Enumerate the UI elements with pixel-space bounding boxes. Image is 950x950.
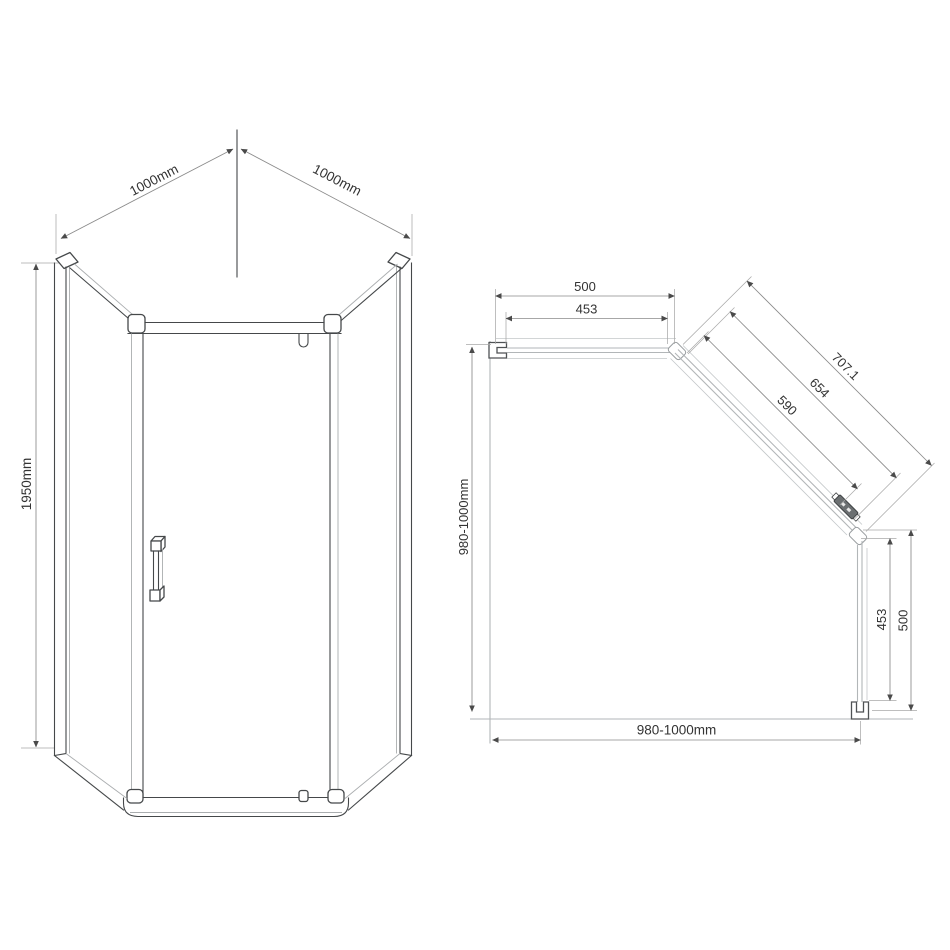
right-wall-post [388, 253, 412, 756]
drawing-svg: 1000mm 1000mm 1950mm [0, 0, 950, 950]
front-width-right-label: 1000mm [310, 161, 364, 199]
plan-wall-profile-top-left [489, 343, 507, 359]
plan-side-panel [852, 541, 869, 719]
plan-diagonal-door [671, 346, 868, 546]
plan-diag-overall-label: 707.1 [829, 350, 863, 384]
front-height-label: 1950mm [19, 458, 34, 511]
front-elevation-view: 1000mm 1000mm 1950mm [19, 130, 412, 817]
front-dimension-lines [36, 149, 410, 747]
plan-back-overall-label: 500 [574, 279, 596, 294]
plan-diag-door-label: 590 [774, 392, 800, 418]
door-top-rail [128, 315, 341, 348]
plan-extension-lines [466, 277, 935, 745]
plan-side-overall-label: 500 [896, 610, 911, 632]
plan-back-panel [489, 339, 687, 361]
plan-diag-mid-label: 654 [807, 375, 833, 401]
left-wall-post [55, 253, 79, 756]
top-sloping-frames [70, 264, 402, 322]
door-bottom-roller [299, 791, 308, 802]
shower-enclosure-technical-drawing: 1000mm 1000mm 1950mm [0, 0, 950, 950]
plan-side-glass-label: 453 [874, 609, 889, 631]
front-extension-lines [21, 214, 412, 748]
plan-back-glass-label: 453 [576, 302, 598, 317]
plan-wall-profile-bottom-right [852, 702, 869, 719]
door-top-roller [299, 335, 308, 348]
door-handle [150, 537, 165, 602]
bottom-sloping-frames [55, 754, 412, 811]
plan-top-view: 500 453 980-1000mm 980-1000mm 707.1 654 … [456, 277, 935, 745]
plan-depth-range-label: 980-1000mm [456, 479, 471, 556]
bottom-rail-tray [124, 790, 349, 817]
plan-width-range-label: 980-1000mm [637, 723, 717, 738]
